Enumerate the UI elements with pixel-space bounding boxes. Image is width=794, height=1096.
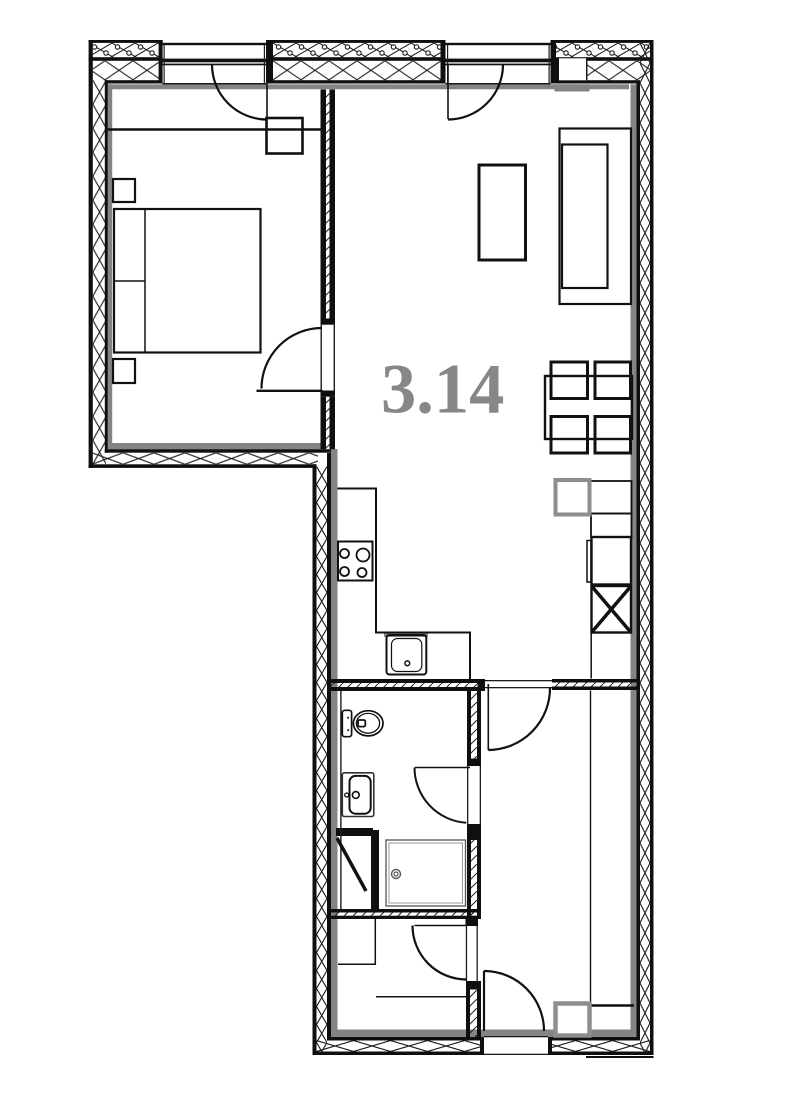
svg-text:3.14: 3.14 bbox=[381, 351, 504, 429]
